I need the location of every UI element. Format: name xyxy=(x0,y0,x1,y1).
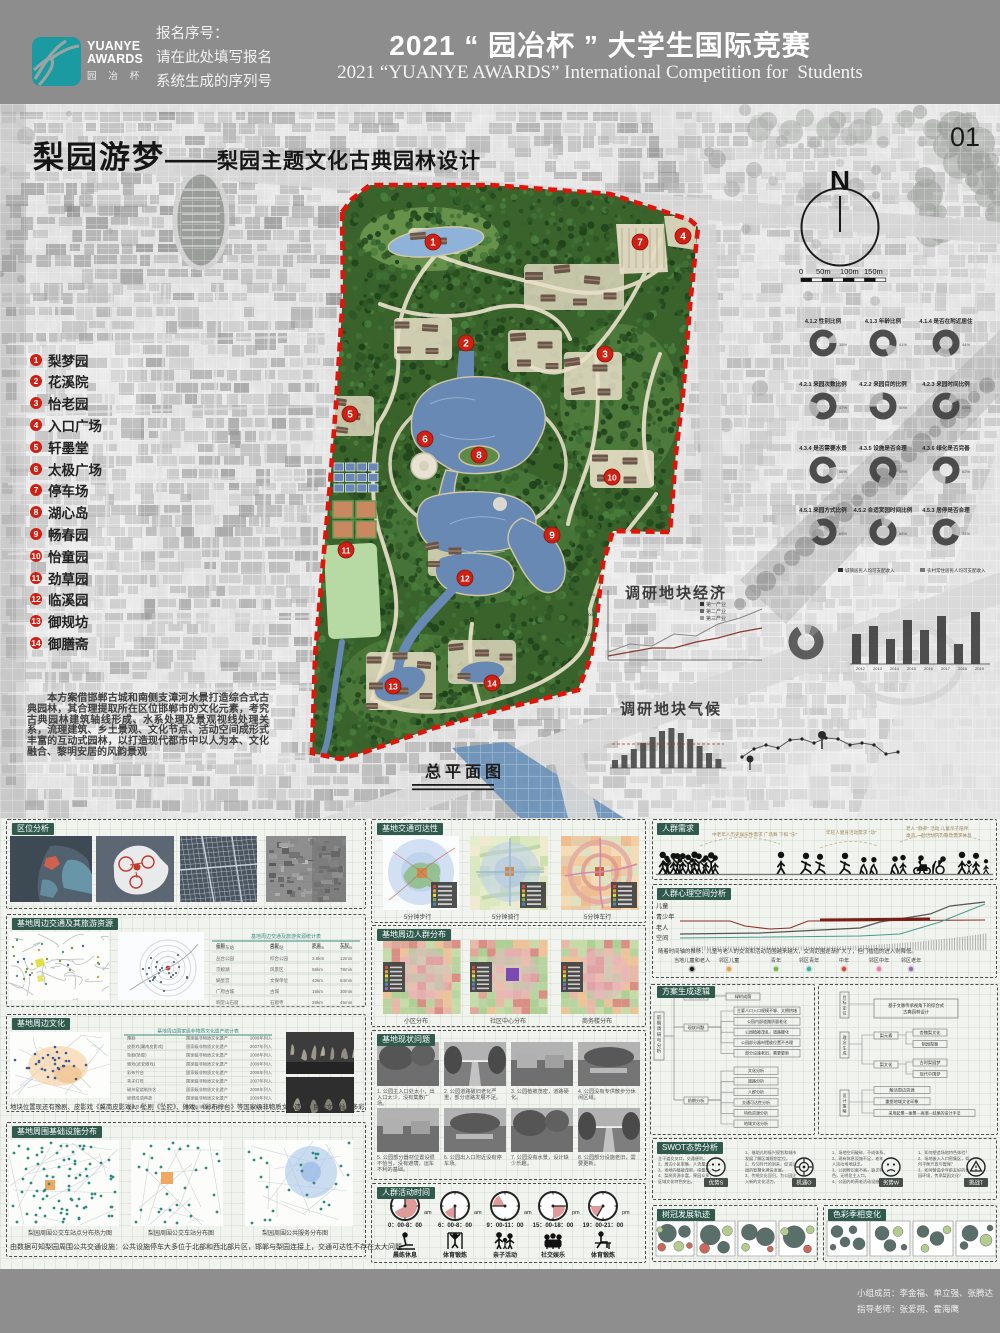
svg-text:64min: 64min xyxy=(340,978,353,983)
svg-text:综合公园: 综合公园 xyxy=(270,955,288,962)
svg-text:2: 2 xyxy=(463,338,469,349)
svg-text:9: 9 xyxy=(549,530,555,541)
svg-text:7: 7 xyxy=(637,237,643,248)
svg-text:59%: 59% xyxy=(899,469,907,474)
svg-text:62%: 62% xyxy=(962,469,970,474)
svg-text:4: 4 xyxy=(680,231,686,242)
svg-text:56km: 56km xyxy=(312,967,323,972)
svg-text:65%: 65% xyxy=(839,531,847,536)
svg-text:47%: 47% xyxy=(839,405,847,410)
svg-text:44%: 44% xyxy=(962,342,970,347)
svg-text:2016: 2016 xyxy=(924,666,934,671)
svg-text:响堂山石窟: 响堂山石窟 xyxy=(216,999,239,1006)
svg-text:6,000: 6,000 xyxy=(585,592,596,597)
svg-text:娲皇宫: 娲皇宫 xyxy=(216,977,230,984)
svg-text:2008年列入: 2008年列入 xyxy=(250,1086,272,1093)
svg-text:4.3.5 设施是否合理: 4.3.5 设施是否合理 xyxy=(859,444,907,452)
svg-text:广府古城: 广府古城 xyxy=(216,988,234,995)
svg-text:石窟寺: 石窟寺 xyxy=(270,999,284,1006)
svg-text:国家级非物质文化遗产: 国家级非物质文化遗产 xyxy=(186,1043,228,1050)
svg-text:邯郸成语典故: 邯郸成语典故 xyxy=(127,1095,153,1102)
svg-text:13: 13 xyxy=(388,681,398,691)
svg-text:0: 0 xyxy=(799,267,803,276)
svg-text:50%: 50% xyxy=(899,405,907,410)
svg-text:30min: 30min xyxy=(340,989,353,994)
svg-text:2015: 2015 xyxy=(907,666,917,671)
svg-text:国家级非物质文化遗产: 国家级非物质文化遗产 xyxy=(186,1052,228,1059)
svg-text:100m: 100m xyxy=(840,267,859,276)
svg-text:2009年列入: 2009年列入 xyxy=(250,1095,272,1102)
svg-text:2006年列入: 2006年列入 xyxy=(250,1035,272,1042)
svg-text:苇子灯阵: 苇子灯阵 xyxy=(127,1078,145,1085)
svg-text:53%: 53% xyxy=(962,405,970,410)
svg-text:3.5km: 3.5km xyxy=(312,956,325,961)
svg-text:2018: 2018 xyxy=(958,666,968,671)
svg-text:5: 5 xyxy=(347,409,353,420)
svg-text:14: 14 xyxy=(487,678,497,688)
svg-text:42km: 42km xyxy=(312,978,323,983)
svg-text:邯郸东站: 邯郸东站 xyxy=(216,944,234,951)
svg-text:150m: 150m xyxy=(864,267,883,276)
svg-text:国家级非物质文化遗产: 国家级非物质文化遗产 xyxy=(186,1060,228,1067)
svg-text:国家级非物质文化遗产: 国家级非物质文化遗产 xyxy=(186,1035,228,1042)
svg-text:11: 11 xyxy=(342,545,351,555)
svg-text:风景区: 风景区 xyxy=(270,967,284,973)
svg-text:4.5.2 合适赏园时间比例: 4.5.2 合适赏园时间比例 xyxy=(854,506,913,514)
svg-text:总平面图: 总平面图 xyxy=(425,762,505,781)
svg-text:基地周边交通及旅游资源统计表: 基地周边交通及旅游资源统计表 xyxy=(251,933,321,940)
svg-text:4.3.4 是否需要水景: 4.3.4 是否需要水景 xyxy=(799,444,847,452)
svg-text:磁州窑烧制技艺: 磁州窑烧制技艺 xyxy=(127,1086,156,1093)
svg-text:28km: 28km xyxy=(312,1000,323,1005)
svg-text:41%: 41% xyxy=(899,342,907,347)
svg-text:4.3.6 绿化是否完善: 4.3.6 绿化是否完善 xyxy=(922,444,970,452)
svg-text:8.2km: 8.2km xyxy=(312,945,325,950)
svg-text:4.2.1 来园次数比例: 4.2.1 来园次数比例 xyxy=(799,380,847,388)
svg-text:38%: 38% xyxy=(839,342,847,347)
svg-text:4.1.3 年龄比例: 4.1.3 年龄比例 xyxy=(865,317,902,325)
svg-text:2013: 2013 xyxy=(873,666,883,671)
svg-text:坠剧(坠腔): 坠剧(坠腔) xyxy=(127,1052,147,1059)
svg-text:2006年列入: 2006年列入 xyxy=(250,1069,272,1076)
svg-text:12min: 12min xyxy=(340,956,353,961)
svg-text:2,000: 2,000 xyxy=(585,632,596,637)
svg-text:6: 6 xyxy=(422,434,428,445)
svg-text:25min: 25min xyxy=(340,945,353,950)
svg-text:皮影戏(冀南皮影戏): 皮影戏(冀南皮影戏) xyxy=(127,1043,164,1050)
svg-text:15km: 15km xyxy=(312,989,323,994)
svg-text:10: 10 xyxy=(607,472,617,482)
svg-text:2017: 2017 xyxy=(941,666,951,671)
svg-text:45min: 45min xyxy=(340,1000,353,1005)
svg-text:2007年列入: 2007年列入 xyxy=(250,1043,272,1050)
svg-text:2008年列入: 2008年列入 xyxy=(250,1052,272,1059)
svg-text:京娘湖: 京娘湖 xyxy=(216,966,230,973)
svg-text:调研地块气候: 调研地块气候 xyxy=(620,700,722,718)
svg-text:古城: 古城 xyxy=(270,988,279,995)
svg-text:城镇居民人均可支配收入: 城镇居民人均可支配收入 xyxy=(845,567,895,574)
svg-text:4.5.3 居停是否合理: 4.5.3 居停是否合理 xyxy=(922,506,970,514)
svg-text:50m: 50m xyxy=(816,267,831,276)
svg-text:1: 1 xyxy=(430,237,436,248)
svg-text:国家级非物质文化遗产: 国家级非物质文化遗产 xyxy=(186,1095,228,1102)
svg-text:4.1.4 是否在附近居住: 4.1.4 是否在附近居住 xyxy=(919,317,973,325)
svg-text:国家级非物质文化遗产: 国家级非物质文化遗产 xyxy=(186,1086,228,1093)
svg-text:2007年列入: 2007年列入 xyxy=(250,1078,272,1085)
svg-text:第二产业: 第二产业 xyxy=(706,608,726,615)
svg-text:豫剧: 豫剧 xyxy=(127,1035,135,1042)
svg-text:4,000: 4,000 xyxy=(585,612,596,617)
svg-text:2009年列入: 2009年列入 xyxy=(250,1060,272,1067)
svg-text:4.5.1 来园方式比例: 4.5.1 来园方式比例 xyxy=(799,506,847,514)
svg-text:2014: 2014 xyxy=(890,666,900,671)
svg-text:第三产业: 第三产业 xyxy=(706,615,726,622)
svg-text:第一产业: 第一产业 xyxy=(706,601,726,608)
svg-text:56%: 56% xyxy=(839,469,847,474)
svg-text:高铁站: 高铁站 xyxy=(270,944,284,951)
svg-text:傩戏(武安傩戏): 傩戏(武安傩戏) xyxy=(127,1060,156,1067)
svg-text:8: 8 xyxy=(476,450,482,461)
svg-text:12: 12 xyxy=(460,573,470,583)
svg-text:2019: 2019 xyxy=(975,666,985,671)
svg-text:2012: 2012 xyxy=(856,666,866,671)
svg-text:01: 01 xyxy=(950,122,980,152)
svg-text:国家级非物质文化遗产: 国家级非物质文化遗产 xyxy=(186,1069,228,1076)
svg-text:N: N xyxy=(830,165,850,196)
svg-text:国家级非物质文化遗产: 国家级非物质文化遗产 xyxy=(186,1078,228,1085)
svg-text:农村常住居民人均可支配收入: 农村常住居民人均可支配收入 xyxy=(927,567,986,574)
svg-text:71%: 71% xyxy=(962,531,970,536)
svg-text:调研地块经济: 调研地块经济 xyxy=(625,584,727,602)
svg-text:4.1.2 性别比例: 4.1.2 性别比例 xyxy=(805,317,842,325)
svg-text:4.2.3 来园时间比例: 4.2.3 来园时间比例 xyxy=(922,380,970,388)
svg-text:68%: 68% xyxy=(899,531,907,536)
svg-text:彩布拧台: 彩布拧台 xyxy=(127,1069,144,1076)
svg-text:3: 3 xyxy=(602,349,608,360)
svg-text:丛台公园: 丛台公园 xyxy=(216,955,234,962)
svg-text:文保单位: 文保单位 xyxy=(270,977,288,984)
svg-text:基地周边国家级非物质文化遗产统计表: 基地周边国家级非物质文化遗产统计表 xyxy=(157,1028,239,1035)
svg-text:4.2.2 来园目的比例: 4.2.2 来园目的比例 xyxy=(859,380,907,388)
svg-text:78min: 78min xyxy=(340,967,353,972)
